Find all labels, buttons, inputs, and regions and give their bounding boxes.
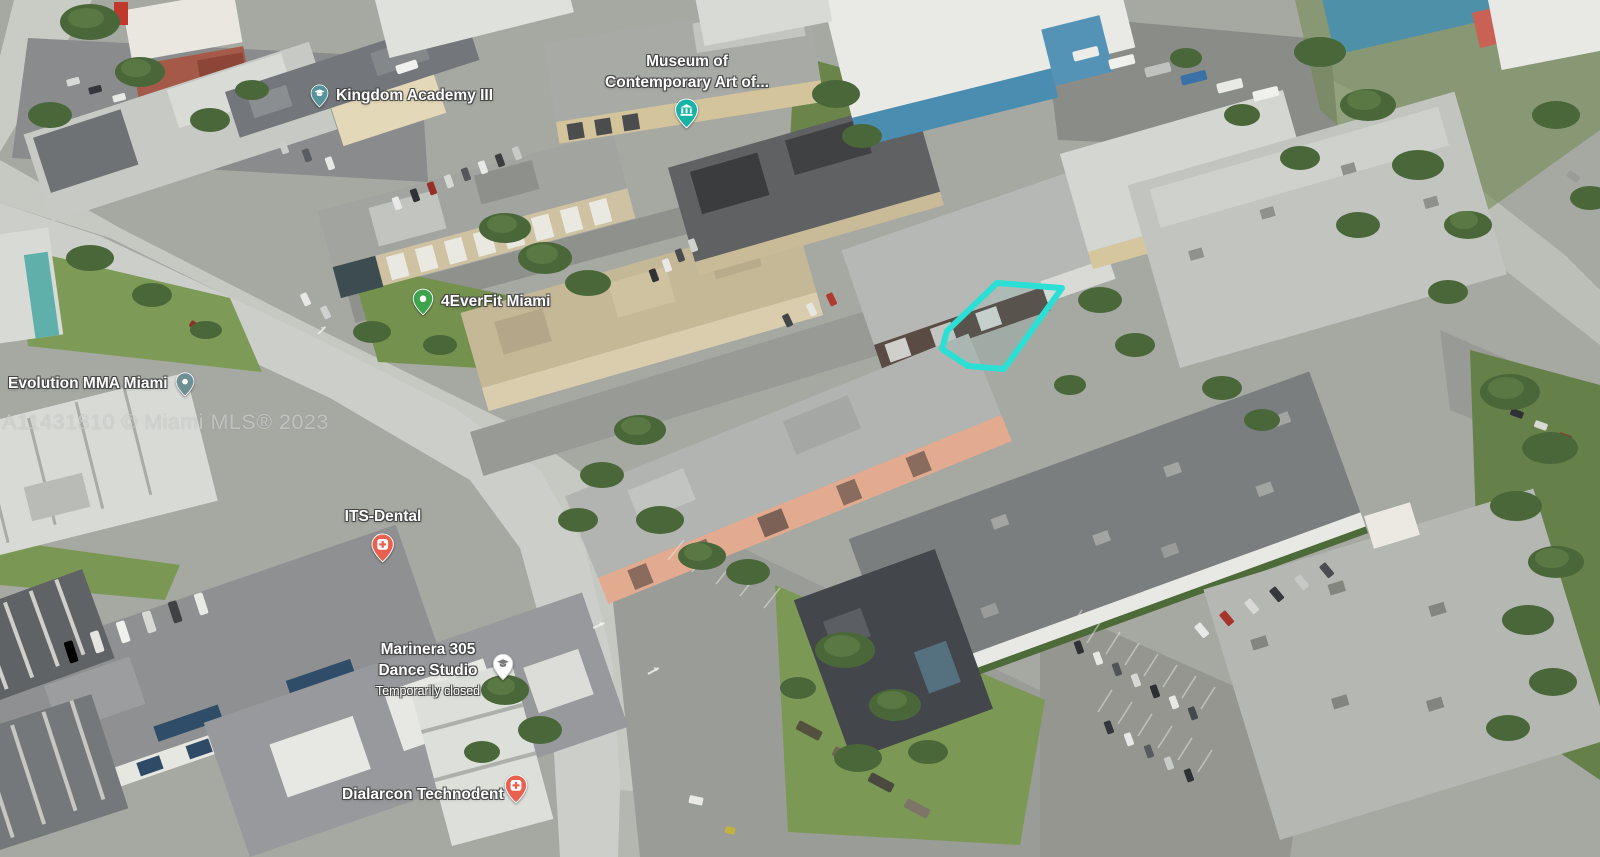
poi-label[interactable]: Dialarcon Technodent xyxy=(342,786,504,805)
poi-label-line2[interactable]: Contemporary Art of... xyxy=(605,74,769,93)
gym-pin-icon xyxy=(175,372,195,397)
museum-pin-icon xyxy=(674,98,699,129)
poi-marinera-305[interactable]: Marinera 305 Dance Studio Temporarily cl… xyxy=(376,641,480,699)
poi-label-line2[interactable]: Dance Studio xyxy=(378,662,477,681)
poi-kingdom-academy[interactable]: Kingdom Academy III xyxy=(310,84,493,108)
poi-label[interactable]: Evolution MMA Miami xyxy=(8,375,168,394)
satellite-imagery xyxy=(0,0,1600,857)
poi-label[interactable]: 4EverFit Miami xyxy=(441,293,550,312)
poi-status: Temporarily closed xyxy=(376,684,480,699)
poi-evolution-mma[interactable]: Evolution MMA Miami xyxy=(8,372,195,397)
aerial-map-view[interactable]: A11431810 © Miami MLS® 2023 Kingdom Acad… xyxy=(0,0,1600,857)
poi-label-line1[interactable]: Marinera 305 xyxy=(381,641,476,660)
poi-marinera-pin dance-school-pin-icon[interactable] xyxy=(492,653,514,681)
poi-dialarcon-pin medical-pin-icon[interactable] xyxy=(504,774,528,804)
gym-pin-icon xyxy=(412,288,434,316)
poi-dialarcon-technodent[interactable]: Dialarcon Technodent xyxy=(342,786,504,805)
poi-its-dental[interactable]: ITS-Dental xyxy=(345,508,422,563)
poi-4everfit-miami[interactable]: 4EverFit Miami xyxy=(412,288,550,316)
poi-label[interactable]: ITS-Dental xyxy=(345,508,422,527)
medical-pin-icon xyxy=(371,533,395,563)
poi-museum-contemporary-art[interactable]: Museum of Contemporary Art of... xyxy=(605,53,769,129)
poi-label[interactable]: Kingdom Academy III xyxy=(336,87,493,106)
school-pin-icon xyxy=(310,84,329,108)
poi-label-line1[interactable]: Museum of xyxy=(646,53,728,72)
